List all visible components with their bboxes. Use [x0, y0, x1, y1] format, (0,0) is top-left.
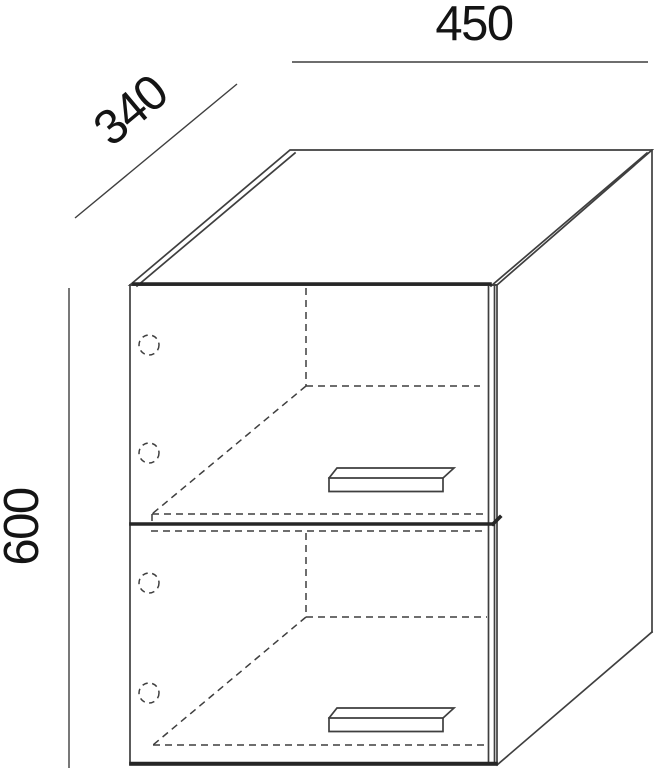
lower-compartment-interior [139, 531, 487, 745]
top-face-left-edge-inner-line [137, 153, 295, 286]
upper-door-hinge-top [139, 335, 159, 355]
upper-door-hinge-bottom [139, 443, 159, 463]
top-face-outline [130, 150, 652, 285]
top-face-right-edge-inner-line [491, 153, 647, 286]
lower-door-hinge-top [139, 573, 159, 593]
dimension-width-label: 450 [435, 0, 513, 51]
dimension-depth-label: 340 [84, 65, 178, 156]
side-bottom-edge [497, 632, 652, 765]
cabinet-top-face [130, 150, 652, 286]
upper-door-handle [329, 468, 454, 492]
lower-door-handle [329, 708, 454, 732]
lower-handle-front [329, 718, 443, 732]
lower-floor-left-edge [153, 617, 306, 745]
lower-handle-top [329, 708, 454, 718]
dimension-height: 600 [0, 288, 69, 768]
dimension-width: 450 [292, 0, 648, 62]
upper-floor-left-edge [152, 386, 306, 514]
cabinet-right-side-face [497, 150, 652, 765]
lower-door-hinge-bottom [139, 683, 159, 703]
cabinet-technical-drawing: 450 340 600 [0, 0, 654, 768]
upper-handle-top [329, 468, 454, 478]
upper-handle-front [329, 478, 443, 492]
dimension-height-label: 600 [0, 488, 49, 566]
drawing-canvas: 450 340 600 [0, 0, 654, 768]
upper-compartment-interior [139, 288, 487, 523]
dimension-depth: 340 [75, 65, 237, 218]
cabinet-front-face [130, 284, 500, 765]
